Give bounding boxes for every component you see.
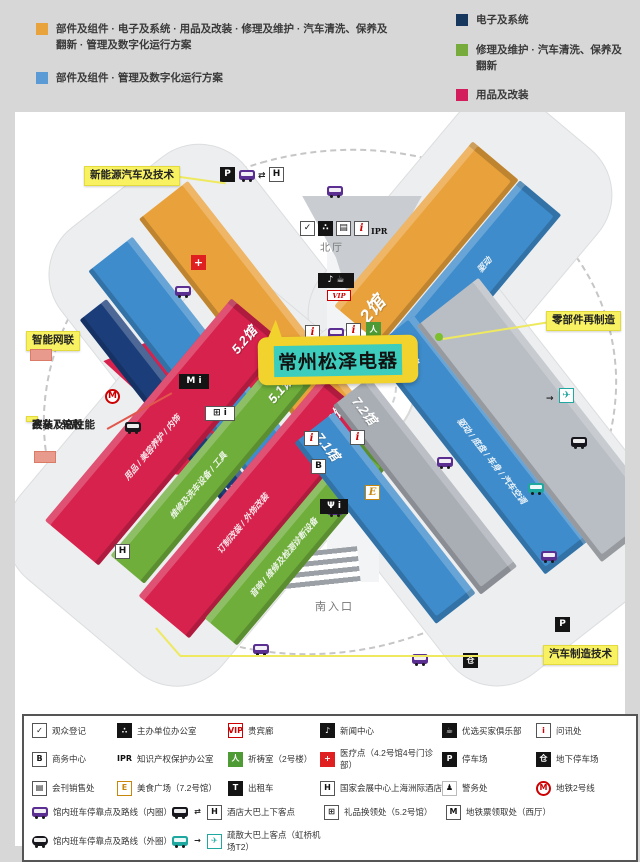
vip-icon: VIP [228,723,243,738]
legend-item: H国家会展中心上海洲际酒店 [320,781,442,796]
top-legend: 部件及组件 · 电子及系统 · 用品及改装 · 修理及维护 · 汽车清洗、保养及… [0,0,640,112]
legend-item: 馆内班车停靠点及路线（外圈） [32,829,172,853]
legend-row: 馆内班车停靠点及路线（内圈）⇄H酒店大巴上下客点⊞礼品换领处（5.2号馆）M地铁… [32,805,628,820]
orange-swatch [36,23,48,35]
plane-icon: ✈ [207,834,222,849]
ipr-icon: IPR [371,223,387,238]
parking-icon: P [220,167,235,182]
swap-icon: ⇄ [258,169,266,184]
legend-entry-label: 电子及系统 [476,13,529,29]
legend-item-label: 国家会展中心上海洲际酒店 [340,782,442,794]
org-icon: ∴ [117,723,132,738]
shuttle-bus-icon [253,644,269,654]
arrow-icon: → [546,392,554,407]
food-court-icon: E [365,485,380,500]
legend-item-label: 疏散大巴上客点（虹桥机场T2） [227,829,324,853]
legend-item-label: 地铁票领取处（西厅） [466,806,551,818]
north-hall-label: 北厅 [320,239,344,254]
directory-sales-icon: ▤ [336,221,351,236]
legend-row: B商务中心IPR知识产权保护办公室人祈祷室（2号楼）+医疗点（4.2号馆4号门诊… [32,747,628,771]
legend-item-label: 问讯处 [556,725,582,737]
parking-icon: P [442,752,457,767]
callout-line [180,655,543,657]
legend-item: i问讯处 [536,723,612,738]
top-legend-left: 部件及组件 · 电子及系统 · 用品及改装 · 修理及维护 · 汽车清洗、保养及… [36,22,396,103]
visitor-registration-icon: ✓ [300,221,315,236]
legend-item-label: 地铁2号线 [556,782,595,794]
callout-racing: 赛车及高性能 改装 / 轮毂 [26,416,38,422]
legend-item: ♪新闻中心 [320,723,442,738]
legend-row: ✓观众登记∴主办单位办公室VIP贵宾廊♪新闻中心☕优选买家俱乐部i问讯处 [32,723,628,738]
medical-cross-icon: + [191,255,206,270]
green-dot [435,333,443,341]
south-entrance-label: 南入口 [315,598,354,614]
legend-entry: 部件及组件 · 电子及系统 · 用品及改装 · 修理及维护 · 汽车清洗、保养及… [36,22,396,54]
blue-swatch [36,72,48,84]
metro-ticket-icon: M i [179,374,209,389]
top-legend-right: 电子及系统 修理及维护 · 汽车清洗、保养及翻新 用品及改装 [456,13,628,118]
airport-shuttle-bus-icon [528,483,544,493]
legend-entry-label: 修理及维护 · 汽车清洗、保养及翻新 [476,43,628,75]
legend-item: T出租车 [228,781,320,796]
callout-parts-remanufacturing: 零部件再制造 [546,311,621,331]
callout-new-energy: 新能源汽车及技术 [84,166,180,186]
hotel-icon: H [320,781,335,796]
hotelshuttle-icon: ⇄H [172,805,222,820]
legend-entry: 电子及系统 [456,13,628,29]
callout-subtag [30,349,52,361]
hotel-icon: H [115,544,130,559]
metro-line2-icon: M [105,389,120,404]
callout-subtag [34,451,56,463]
legend-item: ✓观众登记 [32,723,117,738]
legend-item-label: 馆内班车停靠点及路线（内圈） [53,806,172,818]
legend-entry-label: 用品及改装 [476,88,529,104]
legend-item-label: 酒店大巴上下客点 [227,806,295,818]
arrow-icon: → [190,834,205,849]
exhibitor-name: 常州松泽电器 [274,343,403,376]
vip-lounge-icon: VIP [327,290,351,301]
swap-icon: ⇄ [190,805,205,820]
legend-item: P停车场 [442,747,536,771]
hotel-icon: H [207,805,222,820]
legend-item: ⇄H酒店大巴上下客点 [172,805,324,820]
legend-item-label: 祈祷室（2号楼） [248,753,312,765]
ugparking-icon: 仓 [536,752,551,767]
legend-item: ☕优选买家俱乐部 [442,723,536,738]
legend-item: ⊞礼品换领处（5.2号馆） [324,805,446,820]
media-center-icon: ♪ ☕ [318,273,354,288]
legend-item: ▤会刊销售处 [32,781,117,796]
shuttle-bus-icon [437,457,453,467]
buyers-icon: ☕ [442,723,457,738]
legend-item-label: 礼品换领处（5.2号馆） [344,806,432,818]
legend-item: ♟警务处 [442,781,536,796]
busouter-icon [32,836,48,846]
news-icon: ♪ [320,723,335,738]
restaurant-icon: Ψ i [320,499,348,514]
legend-item-label: 停车场 [462,753,488,765]
legend-item: 人祈祷室（2号楼） [228,747,320,771]
train-icon [125,422,141,432]
legend-item: E美食广场（7.2号馆） [117,781,228,796]
info-icon: i [350,430,365,445]
hall-label: 5.2馆 [226,321,261,357]
shuttle-bus-icon [541,551,557,561]
legend-item-label: 知识产权保护办公室 [137,753,214,765]
legend-row: 馆内班车停靠点及路线（外圈）→✈疏散大巴上客点（虹桥机场T2） [32,829,628,853]
legend-item-label: 优选买家俱乐部 [462,725,522,737]
prayer-icon: 人 [228,752,243,767]
legend-item-label: 美食广场（7.2号馆） [137,782,217,794]
business-center-icon: B [311,459,326,474]
legend-item-label: 商务中心 [52,753,86,765]
exhibitor-callout-bubble: 常州松泽电器 [258,335,419,386]
businner-icon [32,807,48,817]
legend-item: M地铁票领取处（西厅） [446,805,614,820]
gift-redemption-icon: ⊞ i [205,406,235,421]
organizer-office-icon: ∴ [318,221,333,236]
shuttle-bus-icon [327,186,343,196]
directory-icon: ▤ [32,781,47,796]
police-icon: ♟ [442,781,457,796]
callout-manufacturing: 汽车制造技术 [543,645,618,665]
busblk-icon [172,807,188,817]
legend-item-label: 地下停车场 [556,753,599,765]
car-icon [571,437,587,447]
legend-item-label: 新闻中心 [340,725,374,737]
callout-racing-line2: 改装 / 轮毂 [32,419,83,433]
info-icon: i [304,431,319,446]
legend-entry: 修理及维护 · 汽车清洗、保养及翻新 [456,43,628,75]
legend-item-label: 医疗点（4.2号馆4号门诊部） [340,747,442,771]
legend-entry-label: 部件及组件 · 管理及数字化运行方案 [56,71,223,87]
reg-icon: ✓ [32,723,47,738]
hotel-icon: H [269,167,284,182]
info-icon: i [536,723,551,738]
medical-icon: + [320,752,335,767]
legend-item: ∴主办单位办公室 [117,723,228,738]
shuttle-bus-icon [175,286,191,296]
navy-swatch [456,14,468,26]
airshuttle-icon: →✈ [172,834,222,849]
legend-item: VIP贵宾廊 [228,723,320,738]
legend-entry: 用品及改装 [456,88,628,104]
parking-icon: P [555,617,570,632]
metro-icon: M [536,781,551,796]
legend-item-label: 警务处 [462,782,488,794]
ipr-icon: IPR [117,752,132,767]
gift-icon: ⊞ [324,805,339,820]
legend-item: 馆内班车停靠点及路线（内圈） [32,805,172,820]
magenta-swatch [456,89,468,101]
legend-item: →✈疏散大巴上客点（虹桥机场T2） [172,829,324,853]
legend-item-label: 会刊销售处 [52,782,95,794]
mticket-icon: M [446,805,461,820]
exhibition-map-page: { "top_legend": { "items": [ {"color":"#… [0,0,640,853]
hall-label: 7.2馆 [349,392,383,428]
callout-smart-connected: 智能网联 [26,331,80,351]
info-icon: i [354,221,369,236]
legend-item-label: 主办单位办公室 [137,725,197,737]
legend-item: M地铁2号线 [536,781,612,796]
legend-entry: 部件及组件 · 管理及数字化运行方案 [36,71,396,87]
shuttle-bus-icon [239,170,255,180]
plane-icon: ✈ [559,388,574,403]
bottom-legend: ✓观众登记∴主办单位办公室VIP贵宾廊♪新闻中心☕优选买家俱乐部i问讯处B商务中… [22,714,638,862]
legend-item-label: 贵宾廊 [248,725,274,737]
legend-item-label: 观众登记 [52,725,86,737]
biz-icon: B [32,752,47,767]
legend-item: +医疗点（4.2号馆4号门诊部） [320,747,442,771]
green-swatch [456,44,468,56]
legend-item-label: 出租车 [248,782,274,794]
legend-item: B商务中心 [32,747,117,771]
food-icon: E [117,781,132,796]
busteal-icon [172,836,188,846]
legend-item: 仓地下停车场 [536,747,612,771]
taxi-icon: T [228,781,243,796]
legend-entry-label: 部件及组件 · 电子及系统 · 用品及改装 · 修理及维护 · 汽车清洗、保养及… [56,22,396,54]
legend-item-label: 馆内班车停靠点及路线（外圈） [53,835,172,847]
legend-item: IPR知识产权保护办公室 [117,747,228,771]
legend-row: ▤会刊销售处E美食广场（7.2号馆）T出租车H国家会展中心上海洲际酒店♟警务处M… [32,781,628,796]
